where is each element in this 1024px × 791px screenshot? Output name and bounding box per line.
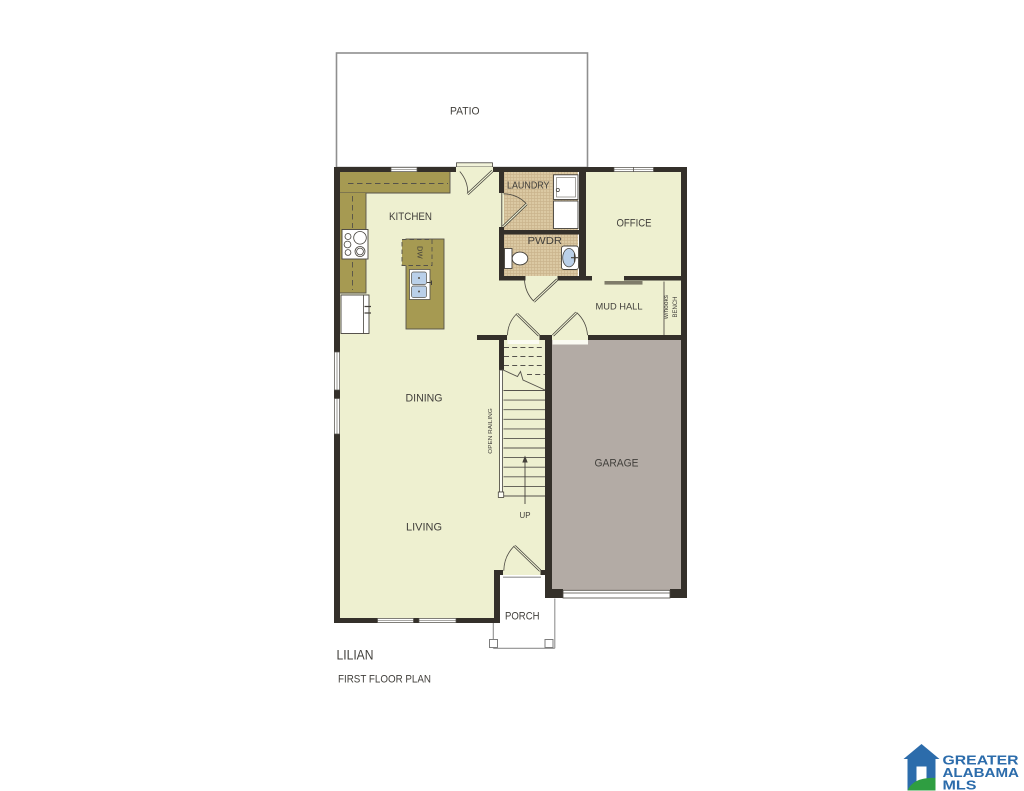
svg-text:LAUNDRY: LAUNDRY bbox=[507, 181, 550, 192]
svg-text:MUD HALL: MUD HALL bbox=[596, 301, 643, 312]
svg-text:DINING: DINING bbox=[406, 393, 443, 405]
svg-text:DW: DW bbox=[416, 246, 425, 260]
svg-text:w/hooks: w/hooks bbox=[663, 295, 670, 320]
svg-text:MLS: MLS bbox=[943, 779, 977, 791]
svg-text:KITCHEN: KITCHEN bbox=[389, 211, 432, 223]
svg-text:UP: UP bbox=[520, 511, 532, 520]
svg-text:BENCH: BENCH bbox=[672, 296, 679, 317]
svg-text:PORCH: PORCH bbox=[505, 611, 540, 623]
svg-text:GARAGE: GARAGE bbox=[595, 458, 639, 470]
svg-text:OPEN RAILING: OPEN RAILING bbox=[488, 408, 494, 454]
svg-text:LILIAN: LILIAN bbox=[337, 648, 374, 663]
svg-text:PWDR: PWDR bbox=[528, 236, 563, 247]
svg-text:LIVING: LIVING bbox=[406, 522, 442, 534]
svg-text:FIRST FLOOR PLAN: FIRST FLOOR PLAN bbox=[338, 674, 431, 686]
svg-text:OFFICE: OFFICE bbox=[617, 218, 652, 230]
svg-text:PATIO: PATIO bbox=[450, 106, 480, 118]
